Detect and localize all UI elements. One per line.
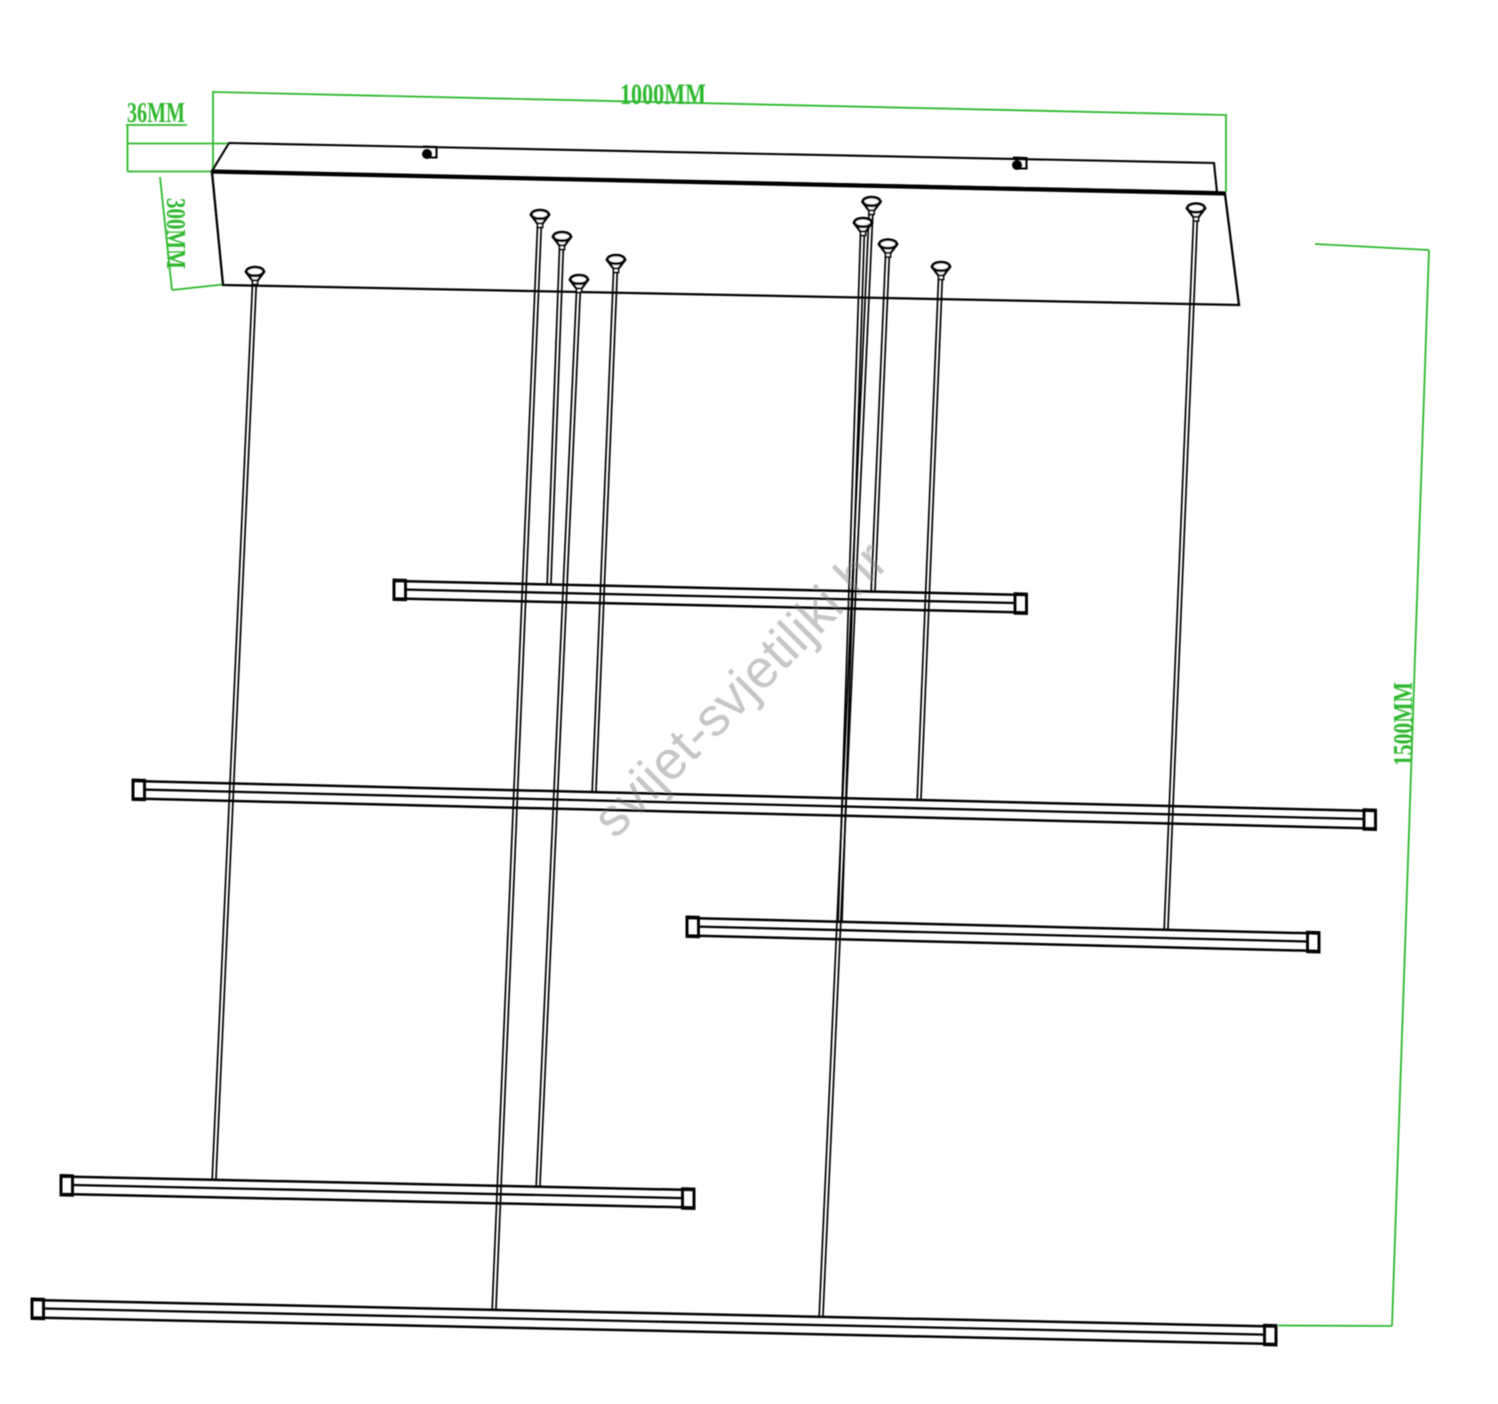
svg-text:300MM: 300MM [161, 198, 191, 269]
svg-text:1000MM: 1000MM [620, 78, 706, 111]
svg-text:1500MM: 1500MM [1388, 682, 1418, 766]
